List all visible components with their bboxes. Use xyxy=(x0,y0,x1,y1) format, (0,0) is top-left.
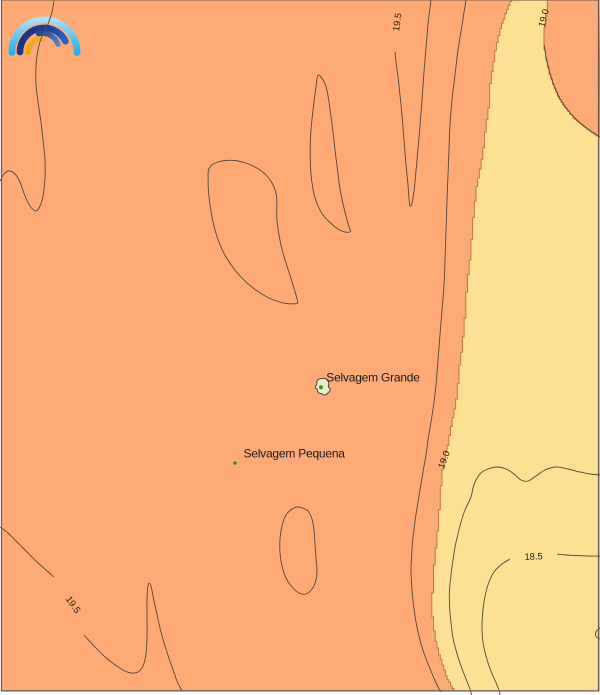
svg-text:Selvagem Pequena: Selvagem Pequena xyxy=(244,447,346,461)
svg-text:18.5: 18.5 xyxy=(524,550,543,562)
svg-text:Selvagem Grande: Selvagem Grande xyxy=(326,370,420,384)
